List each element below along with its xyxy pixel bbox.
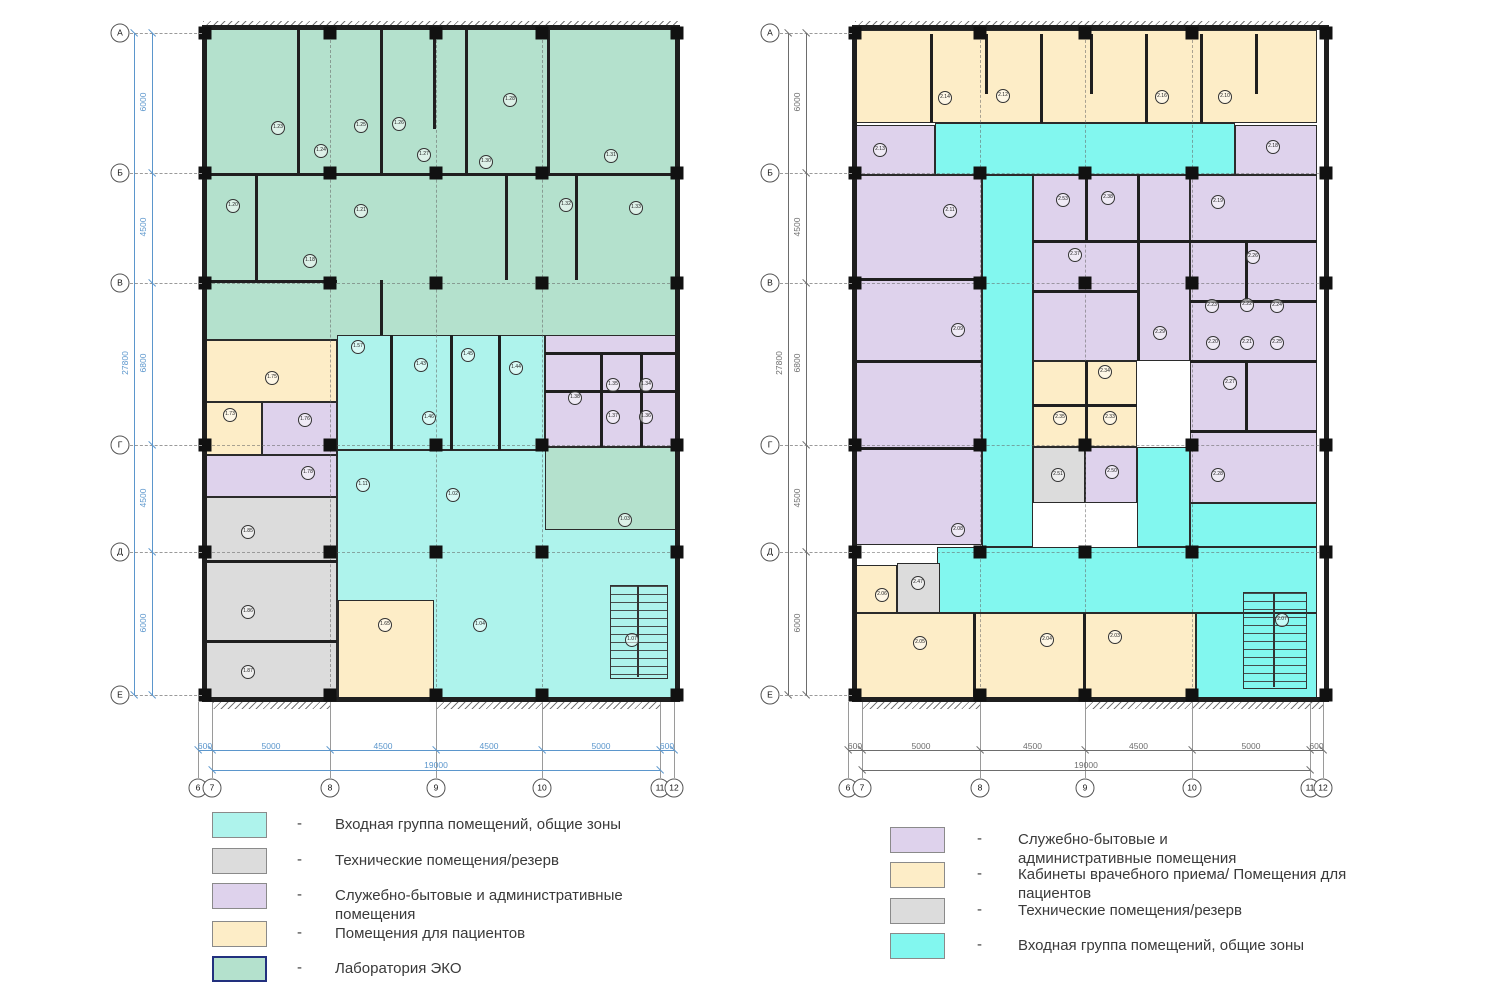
legend-dash: -	[977, 936, 982, 953]
legend-dash: -	[977, 865, 982, 882]
legends: -Входная группа помещений, общие зоны-Те…	[0, 0, 1500, 1000]
drawing-sheet: 1.231.241.251.261.271.281.301.311.201.21…	[0, 0, 1500, 1000]
legend-right: -Служебно-бытовые иадминистративные поме…	[0, 0, 1500, 1000]
legend-swatch	[890, 933, 945, 959]
legend-swatch	[890, 862, 945, 888]
legend-dash: -	[977, 830, 982, 847]
legend-label: Входная группа помещений, общие зоны	[1018, 936, 1304, 955]
legend-dash: -	[977, 901, 982, 918]
legend-label: Служебно-бытовые и	[1018, 830, 1168, 849]
legend-swatch	[890, 827, 945, 853]
legend-label: Технические помещения/резерв	[1018, 901, 1242, 920]
legend-swatch	[890, 898, 945, 924]
legend-label: Кабинеты врачебного приема/ Помещения дл…	[1018, 865, 1346, 884]
